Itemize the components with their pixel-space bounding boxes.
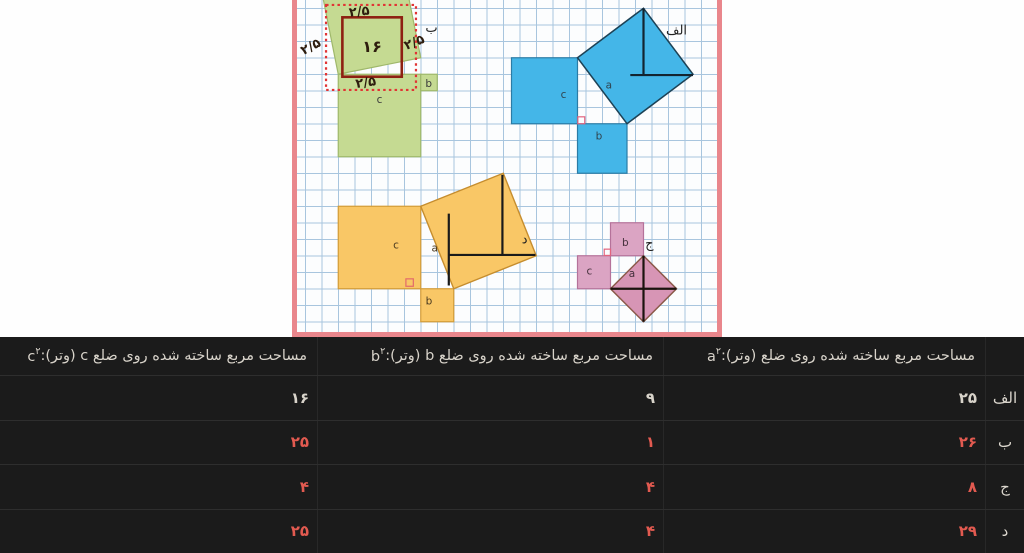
handwritten-2.5-bottom: ۲/۵ xyxy=(355,74,378,92)
column-header-b2: مساحت مربع ساخته شده روی ضلع b (وتر): b۲ xyxy=(317,337,663,375)
row-label-text: الف xyxy=(993,389,1017,407)
column-header-symbol: a۲ xyxy=(707,347,721,365)
row-label-be: ب xyxy=(985,421,1024,465)
cell-b2-dal: ۴ xyxy=(317,510,663,553)
square-c-orange xyxy=(338,206,421,289)
label-b-orange: b xyxy=(426,295,433,307)
figure-label-alef: الف xyxy=(666,24,687,39)
cell-a2-alef: ۲۵ xyxy=(663,376,985,420)
column-header-text: مساحت مربع ساخته شده روی ضلع b (وتر): xyxy=(385,348,653,364)
cell-value: ۲۵ xyxy=(959,389,977,407)
column-header-symbol: b۲ xyxy=(371,347,385,365)
figure-label-dal: د xyxy=(522,232,528,247)
column-header-a2: مساحت مربع ساخته شده روی ضلع (وتر): a۲ xyxy=(663,337,985,375)
cell-value: ۲۹ xyxy=(959,522,977,540)
label-b-pink: b xyxy=(622,237,629,249)
table-header-row: مساحت مربع ساخته شده روی ضلع (وتر): a۲مس… xyxy=(0,337,1024,375)
table-row-alef: الف۲۵۹۱۶ xyxy=(0,375,1024,420)
label-b-blue: b xyxy=(596,130,603,142)
cell-b2-alef: ۹ xyxy=(317,376,663,420)
handwritten-16: ۱۶ xyxy=(362,37,382,56)
label-c-pink: c xyxy=(586,266,592,278)
cell-value: ۲۶ xyxy=(959,433,977,451)
square-c-pink xyxy=(578,256,611,289)
label-a-pink: a xyxy=(629,268,635,280)
row-label-header-cell xyxy=(985,337,1024,375)
cell-value: ۹ xyxy=(646,389,655,407)
row-label-text: د xyxy=(1002,522,1009,540)
cell-value: ۴ xyxy=(300,478,309,496)
grid-paper: ۱۶۲/۵۲/۵۲/۵۲/۵بالفدجcbcabcabbca xyxy=(297,0,717,332)
areas-table: مساحت مربع ساخته شده روی ضلع (وتر): a۲مس… xyxy=(0,337,1024,553)
page: ۱۶۲/۵۲/۵۲/۵۲/۵بالفدجcbcabcabbca مساحت مر… xyxy=(0,0,1024,553)
cell-c2-dal: ۲۵ xyxy=(0,510,317,553)
handwritten-2.5-top: ۲/۵ xyxy=(348,4,370,21)
right-angle-marker-blue xyxy=(578,117,585,124)
cell-value: ۸ xyxy=(968,478,977,496)
column-header-text: مساحت مربع ساخته شده روی ضلع (وتر): xyxy=(721,348,975,364)
label-c-orange: c xyxy=(393,239,399,251)
figure-label-be: ب xyxy=(425,21,437,36)
cell-b2-jim: ۴ xyxy=(317,465,663,509)
table-row-be: ب۲۶۱۲۵ xyxy=(0,420,1024,465)
cell-a2-jim: ۸ xyxy=(663,465,985,509)
square-c-blue xyxy=(512,58,578,124)
row-label-dal: د xyxy=(985,510,1024,553)
table-row-jim: ج۸۴۴ xyxy=(0,464,1024,509)
column-header-text: مساحت مربع ساخته شده روی ضلع c (وتر): xyxy=(40,348,307,364)
cell-c2-be: ۲۵ xyxy=(0,421,317,465)
square-a-orange-tilted xyxy=(421,173,537,289)
cell-value: ۴ xyxy=(646,478,655,496)
cell-value: ۱ xyxy=(646,433,655,451)
cell-value: ۲۵ xyxy=(291,433,309,451)
cell-value: ۴ xyxy=(646,522,655,540)
handwritten-2.5-left: ۲/۵ xyxy=(298,36,323,59)
column-header-symbol: c۲ xyxy=(27,347,40,365)
label-c-blue: c xyxy=(561,89,567,101)
pythagorean-figure-frame: ۱۶۲/۵۲/۵۲/۵۲/۵بالفدجcbcabcabbca xyxy=(292,0,722,337)
cell-c2-jim: ۴ xyxy=(0,465,317,509)
row-label-text: ج xyxy=(1000,478,1010,496)
cell-a2-dal: ۲۹ xyxy=(663,510,985,553)
label-b-green: b xyxy=(425,78,432,90)
right-angle-marker-pink xyxy=(604,249,610,255)
row-label-jim: ج xyxy=(985,465,1024,509)
row-label-text: ب xyxy=(998,433,1012,451)
square-c-green xyxy=(338,74,421,157)
cell-c2-alef: ۱۶ xyxy=(0,376,317,420)
table-row-dal: د۲۹۴۲۵ xyxy=(0,509,1024,553)
cell-value: ۱۶ xyxy=(291,389,309,407)
column-header-c2: مساحت مربع ساخته شده روی ضلع c (وتر): c۲ xyxy=(0,337,317,375)
cell-a2-be: ۲۶ xyxy=(663,421,985,465)
label-a-orange: a xyxy=(432,243,438,255)
row-label-alef: الف xyxy=(985,376,1024,420)
cell-b2-be: ۱ xyxy=(317,421,663,465)
figure-label-jim: ج xyxy=(645,237,654,252)
label-c-green: c xyxy=(377,94,383,106)
label-a-blue: a xyxy=(606,79,612,91)
cell-value: ۲۵ xyxy=(291,522,309,540)
